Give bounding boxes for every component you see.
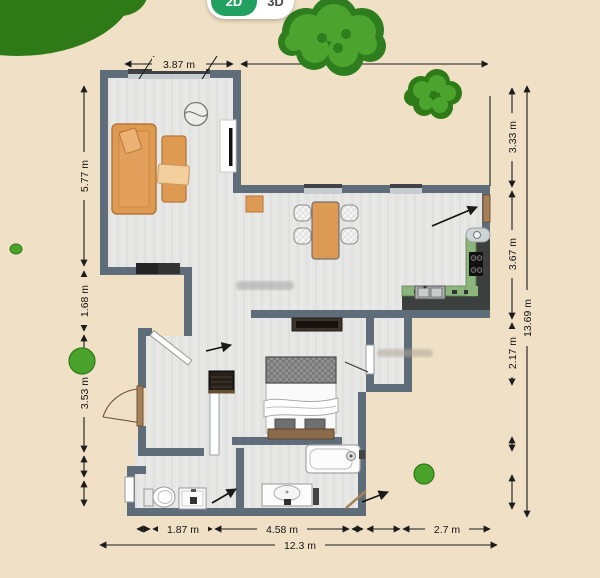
door-exterior-left[interactable] — [103, 386, 143, 426]
dining-table — [312, 202, 339, 259]
view-3d-button[interactable]: 3D — [257, 0, 294, 9]
dim-left-1: 5.77 m — [79, 160, 91, 192]
view-2d-button[interactable]: 2D — [211, 0, 257, 16]
toilet[interactable] — [144, 487, 175, 507]
window-dining-1 — [304, 184, 342, 194]
floorplanner-canvas: 3.87 m 5.77 m 1.68 m 3.53 m 3.33 m 3.67 … — [0, 0, 600, 578]
stove — [469, 252, 483, 276]
dim-bottom-2: 4.58 m — [266, 524, 298, 536]
dim-bottom-total: 12.3 m — [284, 540, 316, 552]
sideboard[interactable] — [136, 263, 180, 274]
door-entrance-right[interactable] — [483, 195, 490, 222]
dim-top: 3.87 m — [163, 59, 195, 71]
dim-right-1: 3.33 m — [507, 121, 519, 153]
dining-chair — [341, 228, 358, 244]
bed[interactable] — [264, 357, 338, 434]
wall-fixture[interactable] — [359, 450, 365, 459]
dim-left-2: 1.68 m — [79, 285, 91, 317]
view-toggle: 2D 3D — [207, 0, 294, 19]
media-console-top — [296, 321, 338, 328]
shower-tray[interactable] — [179, 488, 206, 509]
bath-shelf[interactable] — [313, 488, 319, 505]
floor-plan: 3.87 m 5.77 m 1.68 m 3.53 m 3.33 m 3.67 … — [0, 0, 600, 578]
bathtub[interactable] — [306, 445, 360, 473]
tree-top-middle[interactable] — [278, 0, 386, 76]
plant-small-left[interactable] — [10, 244, 22, 254]
ceiling-fan-icon[interactable] — [185, 103, 208, 126]
window-dining-2 — [390, 184, 422, 194]
plant-bottom-right[interactable] — [414, 464, 434, 484]
tv-panel[interactable] — [220, 120, 236, 172]
dining-chair — [294, 205, 311, 221]
bed-bench[interactable] — [268, 429, 334, 439]
vanity-sink[interactable] — [262, 484, 312, 506]
side-table[interactable] — [246, 196, 263, 212]
partition-wall[interactable] — [210, 393, 219, 455]
dim-right-3: 2.17 m — [507, 337, 519, 369]
lounge-chair[interactable] — [157, 136, 189, 202]
window-bathroom — [125, 477, 134, 502]
sofa[interactable] — [112, 124, 156, 214]
dim-bottom-3: 2.7 m — [434, 524, 461, 536]
dining-chair — [294, 228, 311, 244]
bush-right[interactable] — [404, 69, 462, 119]
armchair[interactable] — [209, 371, 234, 394]
kitchen-sink — [415, 286, 445, 300]
plant-left[interactable] — [69, 348, 95, 374]
dim-right-total: 13.69 m — [522, 299, 534, 337]
dim-label-top: 3.87 m — [152, 57, 206, 71]
tree-top-left[interactable] — [0, 0, 148, 56]
watermark — [377, 349, 433, 357]
watermark — [236, 281, 294, 290]
dim-left-3: 3.53 m — [79, 377, 91, 409]
dim-bottom-1: 1.87 m — [167, 524, 199, 536]
dim-right-2: 3.67 m — [507, 238, 519, 270]
dining-chair — [341, 205, 358, 221]
